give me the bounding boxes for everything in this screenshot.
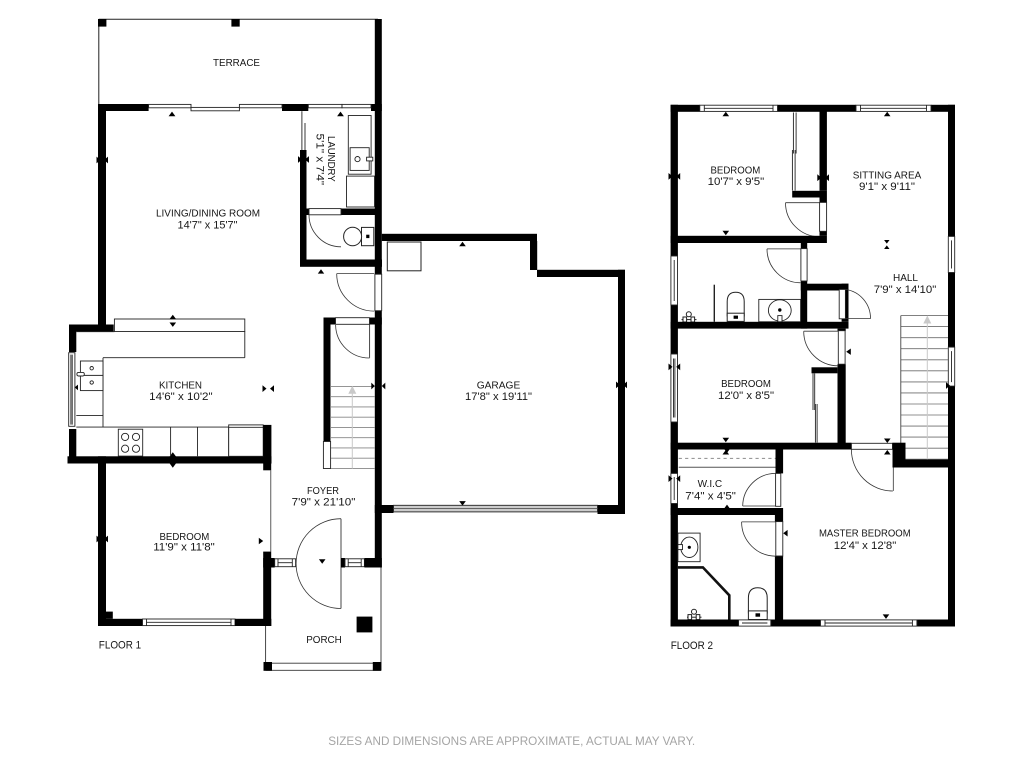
svg-text:7'4" x 4'5": 7'4" x 4'5" xyxy=(685,490,736,502)
svg-text:SITTING AREA: SITTING AREA xyxy=(853,170,922,181)
svg-text:11'9" x 11'8": 11'9" x 11'8" xyxy=(153,542,215,554)
svg-text:FLOOR 2: FLOOR 2 xyxy=(671,640,713,652)
svg-text:LAUNDRY: LAUNDRY xyxy=(325,136,336,182)
svg-text:FOYER: FOYER xyxy=(307,486,339,497)
svg-text:BEDROOM: BEDROOM xyxy=(711,166,761,177)
svg-text:PORCH: PORCH xyxy=(306,635,342,646)
svg-text:17'8" x 19'11": 17'8" x 19'11" xyxy=(465,391,532,403)
svg-text:7'9" x 14'10": 7'9" x 14'10" xyxy=(874,284,937,296)
svg-text:KITCHEN: KITCHEN xyxy=(159,381,202,392)
svg-text:MASTER BEDROOM: MASTER BEDROOM xyxy=(819,529,911,540)
svg-text:14'6" x 10'2": 14'6" x 10'2" xyxy=(149,391,213,403)
svg-text:SIZES AND DIMENSIONS ARE APPRO: SIZES AND DIMENSIONS ARE APPROXIMATE, AC… xyxy=(328,734,695,748)
svg-text:HALL: HALL xyxy=(893,273,918,284)
svg-text:12'0" x 8'5": 12'0" x 8'5" xyxy=(718,390,774,402)
svg-text:14'7" x 15'7": 14'7" x 15'7" xyxy=(178,220,238,232)
svg-text:GARAGE: GARAGE xyxy=(477,381,521,392)
svg-text:TERRACE: TERRACE xyxy=(213,58,260,69)
svg-text:12'4" x 12'8": 12'4" x 12'8" xyxy=(834,540,897,552)
svg-text:9'1" x 9'11": 9'1" x 9'11" xyxy=(859,181,915,193)
svg-text:LIVING/DINING ROOM: LIVING/DINING ROOM xyxy=(156,209,260,220)
svg-text:W.I.C: W.I.C xyxy=(698,479,723,490)
svg-text:5'1" x 7'4": 5'1" x 7'4" xyxy=(314,134,326,186)
svg-text:10'7" x 9'5": 10'7" x 9'5" xyxy=(708,176,765,188)
svg-text:7'9" x 21'10": 7'9" x 21'10" xyxy=(292,497,356,509)
svg-text:BEDROOM: BEDROOM xyxy=(721,379,771,390)
svg-text:FLOOR 1: FLOOR 1 xyxy=(99,640,141,652)
